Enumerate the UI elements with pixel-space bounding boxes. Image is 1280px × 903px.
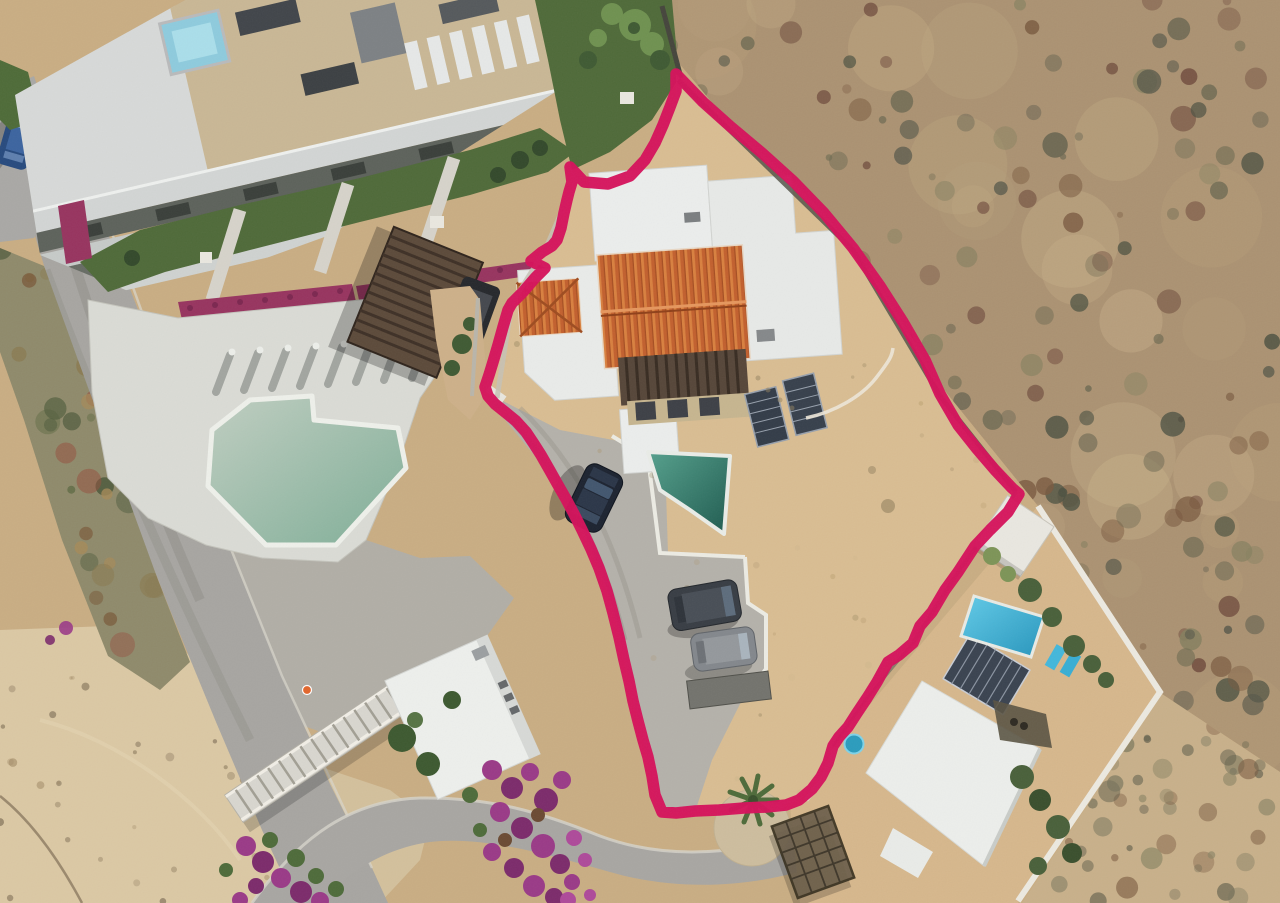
aerial-photo <box>0 0 1280 903</box>
photo-grain <box>0 0 1280 903</box>
aerial-photo-canvas <box>0 0 1280 903</box>
